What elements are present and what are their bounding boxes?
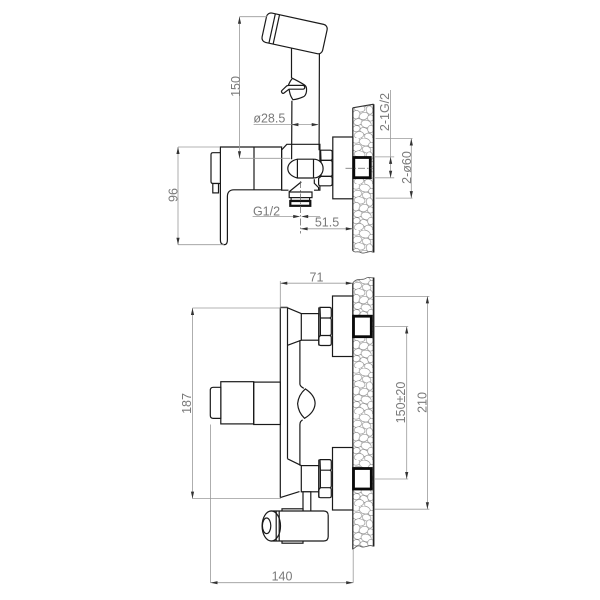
svg-text:ø28.5: ø28.5 bbox=[253, 112, 285, 126]
svg-text:2-ø60: 2-ø60 bbox=[400, 151, 414, 184]
svg-text:187: 187 bbox=[180, 393, 194, 414]
svg-text:51.5: 51.5 bbox=[315, 215, 339, 229]
svg-text:140: 140 bbox=[272, 570, 293, 584]
svg-text:96: 96 bbox=[166, 188, 180, 202]
svg-text:G1/2: G1/2 bbox=[253, 205, 280, 219]
svg-text:210: 210 bbox=[415, 392, 429, 413]
svg-text:150±20: 150±20 bbox=[394, 382, 408, 424]
svg-text:150: 150 bbox=[229, 76, 243, 97]
svg-text:71: 71 bbox=[310, 271, 324, 285]
svg-text:2-1G/2: 2-1G/2 bbox=[378, 93, 392, 131]
